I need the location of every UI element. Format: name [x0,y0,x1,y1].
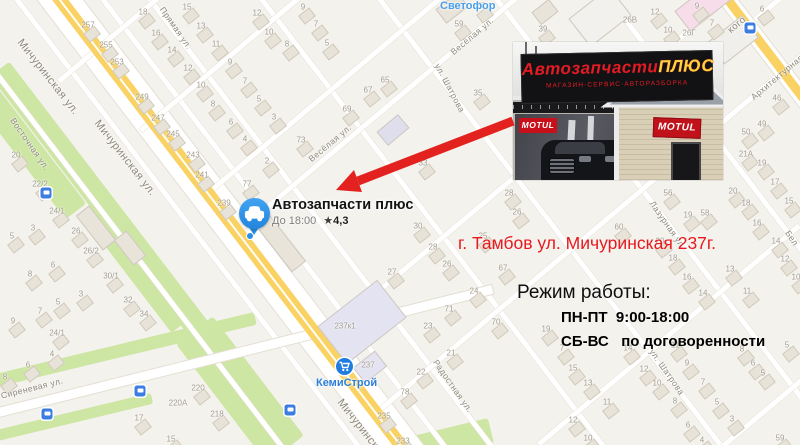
bus-stop-icon[interactable] [285,405,296,416]
house-number-label: 71 [445,305,454,314]
car-icon [239,198,270,229]
house-number-label: 12 [569,416,578,425]
house-number-label: 237к1 [334,322,355,331]
marker-hours: До 18:00 [272,215,316,227]
marker-pin[interactable] [239,198,270,229]
house-number-label: 16 [152,29,161,38]
house-number-label: 18 [742,199,751,208]
house-number-label: 26/2 [83,247,99,256]
house-number-label: 3 [730,415,734,424]
house-number-label: 8 [285,40,289,49]
house-number-label: 78 [401,388,410,397]
house-number-label: 34 [140,310,149,319]
bus-stop-icon[interactable] [745,23,756,34]
house-number-label: 10 [664,26,673,35]
bus-glyph [44,411,50,416]
house-number-label: 253 [110,58,123,67]
house-number-label: 10 [265,28,274,37]
house-number-label: 56 [664,189,673,198]
house-number-label: 59 [776,434,785,443]
house-number-label: 249 [135,93,148,102]
house-number-label: 7 [314,20,318,29]
house-number-label: 16 [683,273,692,282]
house-number-label: 24/1 [49,207,65,216]
house-number-label: 9 [11,317,15,326]
house-number-label: 12 [640,365,649,374]
storefront-photo: MOTUL MOTUL АвтозапчастиПЛЮС МАГАЗИН·СЕР… [513,42,723,180]
schedule-title: Режим работы: [517,282,651,304]
house-number-label: 247 [151,114,164,123]
building [376,114,409,146]
bus-glyph [137,388,143,393]
house-number-label: 243 [186,151,199,160]
house-number-label: 220 [191,384,204,393]
house-number-label: 23 [424,322,433,331]
marker-title[interactable]: Автозапчасти плюс [272,197,413,213]
schedule-weekend: СБ-ВС по договоренности [561,333,765,350]
house-number-label: 21 [447,349,456,358]
house-number-label: 17 [771,178,780,187]
house-number-label: 3 [272,113,276,122]
house-number-label: 255 [99,41,112,50]
house-number-label: 73 [297,136,306,145]
house-number-label: 17 [135,414,144,423]
house-number-label: 65 [381,76,390,85]
house-number-label: 49 [758,120,767,129]
house-number-label: 8 [673,397,677,406]
house-number-label: 241 [195,171,208,180]
bus-glyph [287,407,293,412]
house-number-label: 3 [31,224,35,233]
house-number-label: 67 [499,264,508,273]
house-number-label: 24 [470,287,479,296]
house-number-label: 32 [124,296,133,305]
house-number-label: 8 [3,373,7,382]
bus-stop-icon[interactable] [135,386,146,397]
house-number-label: 33 [419,159,428,168]
house-number-label: 14 [772,237,781,246]
house-number-label: 77 [243,180,252,189]
house-number-label: 2 [265,157,269,166]
shopping-cart-icon[interactable] [336,358,353,375]
house-number-label: 46 [773,94,782,103]
house-number-label: 19 [758,159,767,168]
poi-label-kemistroy[interactable]: КемиСтрой [316,377,377,389]
house-number-label: 26 [443,260,452,269]
house-number-label: 11 [743,287,751,296]
house-number-label: 9 [228,58,232,67]
house-number-label: 30/1 [103,272,119,281]
photo-banner: АвтозапчастиПЛЮС МАГАЗИН·СЕРВИС·АВТОРАЗБ… [520,50,713,104]
house-number-label: 9 [695,2,699,11]
house-number-label: 27 [388,268,397,277]
house-number-label: 5 [10,232,14,241]
house-number-label: 12 [184,64,193,73]
house-number-label: 8 [28,270,32,279]
house-number-label: 6 [760,5,764,14]
house-number-label: 237 [361,361,374,370]
house-number-label: 30 [414,222,423,231]
house-number-label: 20 [12,151,21,160]
house-number-label: 26 [72,227,81,236]
house-number-label: 14 [168,46,177,55]
house-number-label: 10 [197,81,206,90]
house-number-label: 10 [584,434,593,443]
house-number-label: 7 [243,77,247,86]
house-number-label: 28 [429,243,438,252]
house-number-label: 70 [492,318,501,327]
house-number-label: 239 [217,199,230,208]
house-number-label: 4 [50,350,54,359]
house-number-label: 50 [742,128,751,137]
bus-stop-icon[interactable] [41,188,52,199]
bus-glyph [747,25,753,30]
house-number-label: 13 [726,265,735,274]
house-number-label: 24/1 [49,329,65,338]
house-number-label: 13 [197,22,206,31]
arrow-head [336,170,362,192]
house-number-label: 233 [396,437,409,445]
house-number-label: 4 [700,436,704,445]
house-number-label: 58 [701,209,710,218]
house-number-label: 67 [364,86,373,95]
house-number-label: 245 [166,130,179,139]
house-number-label: 257 [81,21,94,30]
house-number-label: 10 [792,273,800,282]
bus-stop-icon[interactable] [42,409,53,420]
house-number-label: 4 [243,135,247,144]
house-number-label: 5 [715,398,719,407]
house-number-label: 5 [257,95,261,104]
house-number-label: 12 [781,255,790,264]
building [531,0,558,25]
house-number-label: 15 [785,197,794,206]
house-number-label: 7 [701,378,705,387]
street-name-label: ул. Шатрова [433,62,467,114]
house-number-label: 6 [26,361,30,370]
house-number-label: 59 [455,20,464,29]
house-number-label: 6 [229,118,233,127]
house-number-label: 18 [669,254,678,263]
house-number-label: 13 [584,379,593,388]
motul-wall-sign: MOTUL [653,117,702,139]
poi-label-svetofor[interactable]: Светофор [440,0,495,12]
house-number-label: 9 [301,3,305,12]
house-number-label: 15 [183,3,192,12]
house-number-label: 11 [212,40,220,49]
photo-window [671,142,701,180]
house-number-label: 21А [739,150,753,159]
bus-glyph [43,190,49,195]
house-number-label: 39 [539,25,548,34]
marker-subtitle: До 18:00★4,3 [272,214,348,227]
house-number-label: 19 [684,211,693,220]
banner-accent: ПЛЮС [658,56,714,76]
address-text: г. Тамбов ул. Мичуринская 237г. [458,233,716,254]
house-number-label: 5 [56,298,60,307]
house-number-label: 26Г [682,29,695,38]
house-number-label: 5 [325,39,329,48]
house-number-label: 14 [699,289,708,298]
house-number-label: 218 [210,410,223,419]
banner-subtitle: МАГАЗИН·СЕРВИС·АВТОРАЗБОРКА [522,79,712,90]
house-number-label: 35 [474,89,483,98]
house-number-label: 15 [569,364,578,373]
house-number-label: 6 [51,261,55,270]
map-app[interactable]: 2572552532492472452432412392022/224/1181… [0,0,800,445]
house-number-label: 7 [38,307,42,316]
star-icon: ★ [323,215,333,227]
house-number-label: 8 [211,100,215,109]
house-number-label: 12 [651,8,660,17]
house-number-label: 10 [653,379,662,388]
house-number-label: 28 [505,189,514,198]
house-number-label: 9 [685,359,689,368]
house-number-label: 5 [761,369,765,378]
house-number-label: 235 [377,412,390,421]
house-number-label: 16 [753,219,762,228]
house-number-label: 220А [169,399,188,408]
house-number-label: 60 [615,223,624,232]
schedule-weekdays: ПН-ПТ 9:00-18:00 [561,309,689,326]
house-number-label: 19 [542,325,551,334]
house-number-label: 5 [785,341,789,350]
house-number-label: 26В [623,16,637,25]
house-number-label: 26 [513,208,522,217]
house-number-label: 3 [79,290,83,299]
house-number-label: 15 [167,435,176,444]
house-number-label: 18 [139,8,148,17]
house-number-label: 6 [751,359,755,368]
house-number-label: 7 [710,19,714,28]
house-number-label: 69 [343,105,352,114]
banner-title: АвтозапчастиПЛЮС [522,56,712,80]
house-number-label: 20 [729,187,738,196]
house-number-label: 6 [686,421,690,430]
house-number-label: 11 [603,398,611,407]
marker-location-dot [246,232,254,240]
house-number-label: 12 [253,9,262,18]
house-number-label: 22 [417,368,426,377]
marker-rating: 4,3 [333,215,348,227]
